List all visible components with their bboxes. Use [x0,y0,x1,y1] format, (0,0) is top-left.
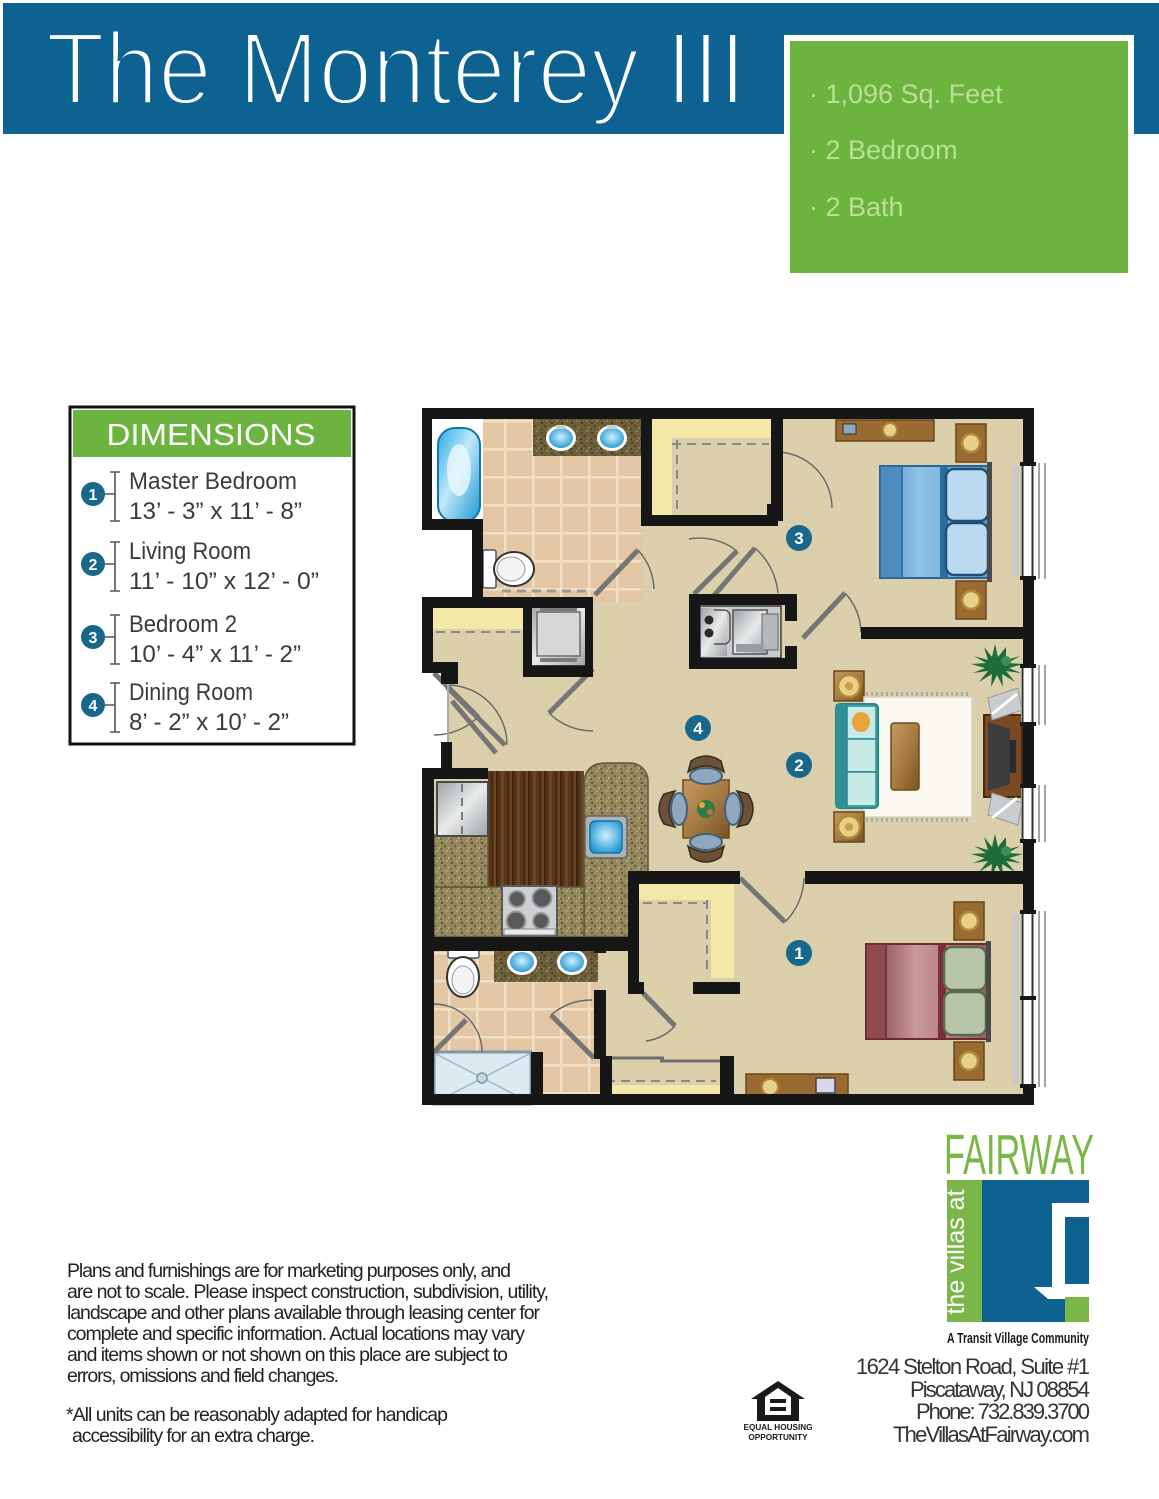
svg-text:Living Room: Living Room [129,538,251,565]
svg-text:10’ - 4” x 11’ - 2”: 10’ - 4” x 11’ - 2” [129,641,301,668]
svg-text:4: 4 [693,719,703,738]
svg-text:Plans and furnishings are for: Plans and furnishings are for marketing … [67,1260,511,1282]
svg-text:Master Bedroom: Master Bedroom [129,468,297,495]
svg-text:EQUAL HOUSING: EQUAL HOUSING [744,1423,813,1432]
svg-text:and items shown or not shown o: and items shown or not shown on this pla… [67,1344,508,1366]
svg-text:landscape and other plans avai: landscape and other plans available thro… [67,1302,541,1324]
svg-text:The Monterey III: The Monterey III [46,11,746,126]
svg-text:· 1,096 Sq. Feet: · 1,096 Sq. Feet [809,79,1003,109]
svg-text:Bedroom 2: Bedroom 2 [129,611,237,638]
svg-text:3: 3 [794,529,803,548]
svg-text:complete and specific informat: complete and specific information. Actua… [67,1323,525,1345]
svg-text:Phone: 732.839.3700: Phone: 732.839.3700 [916,1399,1090,1424]
svg-text:are not to scale. Please inspe: are not to scale. Please inspect constru… [67,1281,549,1303]
svg-text:· 2 Bedroom: · 2 Bedroom [809,135,958,165]
svg-text:A Transit Village Community: A Transit Village Community [947,1331,1089,1347]
svg-text:accessibility for an extra cha: accessibility for an extra charge. [72,1425,315,1447]
svg-text:errors, omissions and field ch: errors, omissions and field changes. [67,1365,339,1387]
svg-text:1: 1 [89,487,98,504]
svg-text:11’ - 10” x 12’ - 0”: 11’ - 10” x 12’ - 0” [129,568,319,595]
svg-text:OPPORTUNITY: OPPORTUNITY [748,1433,808,1442]
svg-text:FAIRWAY: FAIRWAY [944,1123,1094,1187]
svg-text:TheVillasAtFairway.com: TheVillasAtFairway.com [893,1422,1090,1447]
svg-text:DIMENSIONS: DIMENSIONS [107,417,316,452]
svg-text:2: 2 [89,557,98,574]
svg-text:4: 4 [89,698,98,715]
svg-text:3: 3 [89,630,98,647]
svg-text:1624 Stelton Road, Suite #1: 1624 Stelton Road, Suite #1 [856,1354,1090,1379]
svg-text:1: 1 [794,944,803,963]
svg-text:· 2 Bath: · 2 Bath [809,192,904,222]
svg-text:*All units can be reasonably a: *All units can be reasonably adapted for… [66,1404,448,1426]
svg-text:2: 2 [794,756,803,775]
svg-text:13’ - 3” x 11’ - 8”: 13’ - 3” x 11’ - 8” [129,498,302,525]
svg-text:the villas at: the villas at [942,1189,970,1314]
svg-text:Dining Room: Dining Room [129,679,253,706]
svg-text:8’ - 2” x 10’ - 2”: 8’ - 2” x 10’ - 2” [129,709,289,736]
